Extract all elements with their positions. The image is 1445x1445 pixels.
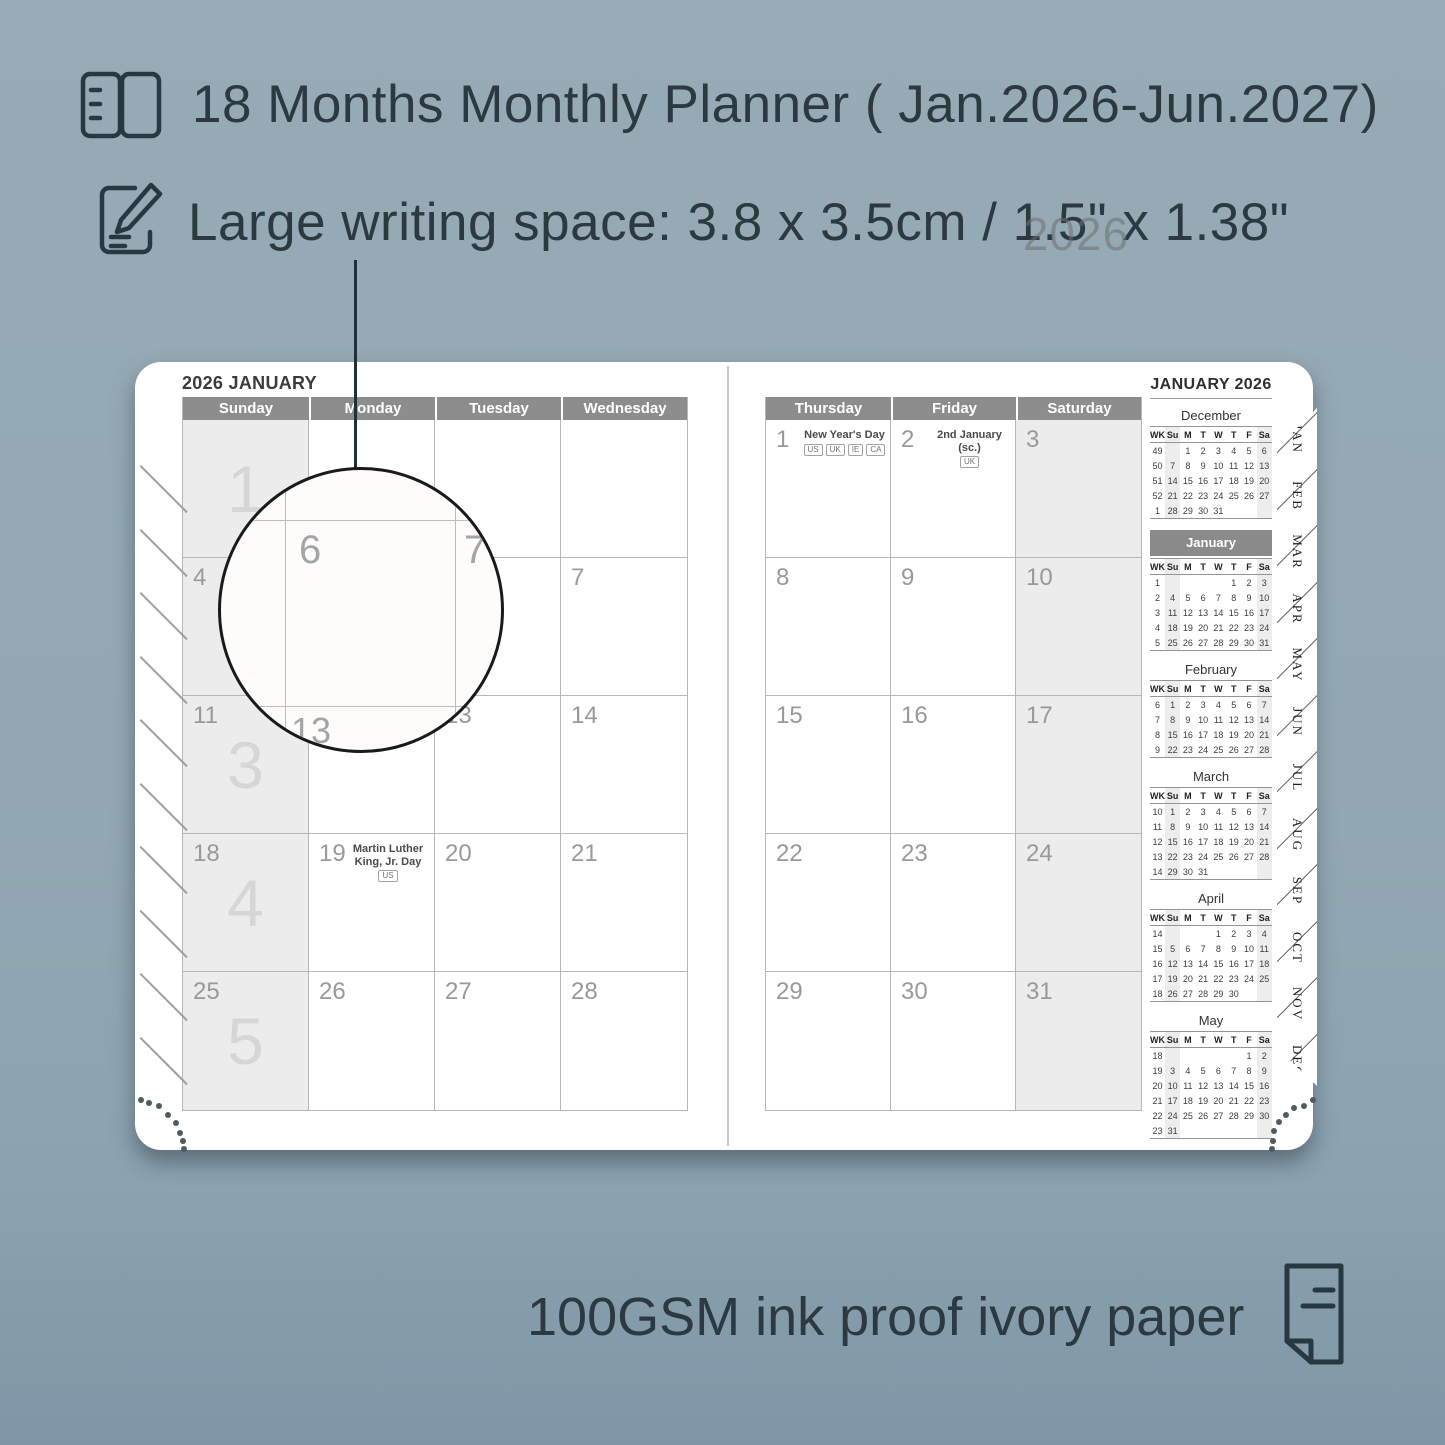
mini-weekday-header: WK: [1150, 559, 1165, 575]
mini-day: 12: [1165, 956, 1180, 971]
mini-day: 7: [1165, 458, 1180, 473]
mini-day: 28: [1165, 503, 1180, 518]
holiday-label: 2nd January (sc.)UK: [927, 429, 1012, 468]
mini-week-number: 19: [1150, 1063, 1165, 1078]
mini-day: 17: [1196, 727, 1211, 742]
mini-day: 9: [1226, 941, 1241, 956]
mini-month-title: April: [1150, 891, 1272, 906]
decoration-dot: [181, 1146, 187, 1152]
decoration-dot: [180, 1138, 186, 1144]
mini-day: 13: [1196, 605, 1211, 620]
cell-date: 24: [1026, 842, 1053, 866]
mini-week-number: 7: [1150, 712, 1165, 727]
calendar-cell: 21: [561, 834, 687, 972]
mini-day: 23: [1180, 742, 1195, 757]
mini-day: [1180, 1123, 1195, 1138]
mini-day: [1211, 575, 1226, 590]
mini-week-number: 6: [1150, 697, 1165, 712]
mini-day: [1165, 575, 1180, 590]
mini-day: 2: [1226, 926, 1241, 941]
mini-day: 22: [1180, 488, 1195, 503]
mini-day: 13: [1241, 819, 1256, 834]
mini-day: 10: [1165, 1078, 1180, 1093]
mini-day: 27: [1241, 742, 1256, 757]
mini-day: 17: [1165, 1093, 1180, 1108]
mini-day: 28: [1211, 635, 1226, 650]
mini-day: 7: [1257, 804, 1272, 819]
mini-weekday-header: WK: [1150, 788, 1165, 804]
mini-weekday-header: T: [1226, 1032, 1241, 1048]
mini-week-number: 4: [1150, 620, 1165, 635]
right-month-grid: ThursdayFridaySaturday1New Year's DayUSU…: [765, 397, 1142, 1111]
holiday-name: 2nd January (sc.): [927, 429, 1012, 454]
day-header-monday: Monday: [309, 397, 435, 420]
hatch-line: [140, 656, 188, 704]
mini-day: 22: [1165, 742, 1180, 757]
calendar-cell: 1New Year's DayUSUKIECA: [766, 420, 891, 558]
mini-day: 20: [1257, 473, 1272, 488]
calendar-cell: 30: [891, 972, 1016, 1110]
calendar-cell: 22: [766, 834, 891, 972]
mini-month-table: WKSuMTWTFSa49123456507891011121351141516…: [1150, 426, 1272, 519]
mini-day: 19: [1226, 727, 1241, 742]
cell-date: 10: [1026, 566, 1053, 590]
mini-day: 31: [1211, 503, 1226, 518]
mini-day: 15: [1241, 1078, 1256, 1093]
mini-day: 9: [1180, 712, 1195, 727]
hatch-line: [140, 529, 188, 577]
mini-day: 28: [1196, 986, 1211, 1001]
mini-day: 25: [1257, 971, 1272, 986]
holiday-name: Martin Luther King, Jr. Day: [345, 843, 431, 868]
mini-day: [1241, 986, 1256, 1001]
mini-day: 30: [1180, 864, 1195, 879]
mini-day: 30: [1196, 503, 1211, 518]
mini-day: [1257, 986, 1272, 1001]
mini-day: 11: [1257, 941, 1272, 956]
mini-month-may: MayWKSuMTWTFSa18121934567892010111213141…: [1150, 1013, 1272, 1139]
mini-day: 29: [1241, 1108, 1256, 1123]
mini-day: 17: [1211, 473, 1226, 488]
month-tab-aug: AUG: [1277, 804, 1317, 861]
magnifier-circle: 6 7 13: [218, 467, 504, 753]
mini-weekday-header: M: [1180, 681, 1195, 697]
hatch-line: [140, 783, 188, 831]
month-tab-apr: APR: [1277, 578, 1317, 635]
mini-week-number: 49: [1150, 443, 1165, 458]
mini-day: 27: [1211, 1108, 1226, 1123]
mini-day: 31: [1165, 1123, 1180, 1138]
mini-weekday-header: WK: [1150, 681, 1165, 697]
calendar-cell: 26: [309, 972, 435, 1110]
mini-week-number: 5: [1150, 635, 1165, 650]
mini-weekday-header: WK: [1150, 427, 1165, 443]
mini-weekday-header: Sa: [1257, 910, 1272, 926]
mini-day: 8: [1165, 712, 1180, 727]
mini-day: 1: [1211, 926, 1226, 941]
cell-date: 1: [776, 428, 789, 452]
mini-month-title: May: [1150, 1013, 1272, 1028]
mini-day: 5: [1180, 590, 1195, 605]
mini-day: 9: [1180, 819, 1195, 834]
calendar-cell: 418: [183, 834, 309, 972]
mini-day: 31: [1257, 635, 1272, 650]
mini-day: 2: [1180, 804, 1195, 819]
mini-day: 16: [1180, 834, 1195, 849]
mini-day: 25: [1211, 849, 1226, 864]
mini-day: 22: [1241, 1093, 1256, 1108]
mini-weekday-header: Su: [1165, 427, 1180, 443]
cell-date: 25: [193, 980, 220, 1004]
mini-day: 25: [1211, 742, 1226, 757]
calendar-cell: 24: [1016, 834, 1141, 972]
mini-day: 27: [1257, 488, 1272, 503]
cell-date: 31: [1026, 980, 1053, 1004]
cell-date: 15: [776, 704, 803, 728]
mini-day: 11: [1165, 605, 1180, 620]
cell-date: 22: [776, 842, 803, 866]
month-tab-label: APR: [1289, 593, 1305, 624]
mini-month-table: WKSuMTWTFSa18121934567892010111213141516…: [1150, 1031, 1272, 1139]
cell-date: 23: [901, 842, 928, 866]
calendar-cell: 19Martin Luther King, Jr. DayUS: [309, 834, 435, 972]
mini-week-number: 14: [1150, 864, 1165, 879]
mini-weekday-header: WK: [1150, 910, 1165, 926]
mini-day: 20: [1211, 1093, 1226, 1108]
mini-weekday-header: M: [1180, 559, 1195, 575]
mini-day: 21: [1226, 1093, 1241, 1108]
mini-day: 3: [1196, 697, 1211, 712]
mini-day: 1: [1226, 575, 1241, 590]
cell-date: 7: [571, 566, 584, 590]
month-tab-jul: JUL: [1277, 747, 1317, 804]
mini-day: 21: [1257, 834, 1272, 849]
mini-day: 1: [1180, 443, 1195, 458]
mini-day: 8: [1211, 941, 1226, 956]
month-tab-jan: JAN: [1277, 408, 1317, 465]
mini-weekday-header: Su: [1165, 559, 1180, 575]
mini-day: 3: [1165, 1063, 1180, 1078]
calendar-cell: 15: [766, 696, 891, 834]
calendar-cell: 29: [766, 972, 891, 1110]
mini-week-number: 13: [1150, 849, 1165, 864]
left-page-title: 2026 JANUARY: [182, 373, 317, 394]
month-tab-jun: JUN: [1277, 691, 1317, 748]
month-tab-label: MAY: [1289, 647, 1305, 682]
mini-day: 25: [1180, 1108, 1195, 1123]
mini-weekday-header: Sa: [1257, 788, 1272, 804]
mini-day: 28: [1226, 1108, 1241, 1123]
mini-week-number: 16: [1150, 956, 1165, 971]
decoration-dot: [177, 1130, 183, 1136]
mini-day: 6: [1241, 697, 1256, 712]
feature-planner-range: 18 Months Monthly Planner ( Jan.2026-Jun…: [192, 74, 1379, 135]
decoration-dot: [1270, 1138, 1276, 1144]
mini-day: 18: [1211, 834, 1226, 849]
mini-day: 25: [1226, 488, 1241, 503]
mini-day: [1226, 864, 1241, 879]
mini-day: 21: [1196, 971, 1211, 986]
mini-weekday-header: T: [1226, 427, 1241, 443]
month-tab-label: SEP: [1289, 877, 1305, 905]
mini-weekday-header: W: [1211, 681, 1226, 697]
mini-month-table: WKSuMTWTFSa10123456711891011121314121516…: [1150, 787, 1272, 880]
month-tab-mar: MAR: [1277, 521, 1317, 578]
calendar-cell: 23: [891, 834, 1016, 972]
calendar-cell: [561, 420, 687, 558]
country-badge: CA: [866, 444, 885, 456]
mini-day: [1211, 1123, 1226, 1138]
open-planner-icon: [78, 70, 164, 145]
decoration-dot: [165, 1112, 171, 1118]
mini-day: 11: [1226, 458, 1241, 473]
mini-weekday-header: Su: [1165, 681, 1180, 697]
calendar-cell: 16: [891, 696, 1016, 834]
hatch-line: [140, 973, 188, 1021]
mini-week-number: 1: [1150, 575, 1165, 590]
mini-weekday-header: M: [1180, 1032, 1195, 1048]
mini-day: 18: [1165, 620, 1180, 635]
month-tab-label: NOV: [1289, 987, 1305, 1021]
decoration-dot: [173, 1120, 179, 1126]
mini-day: 31: [1196, 864, 1211, 879]
mini-day: 18: [1257, 956, 1272, 971]
mini-weekday-header: M: [1180, 427, 1195, 443]
mini-day: 27: [1241, 849, 1256, 864]
mini-day: 19: [1196, 1093, 1211, 1108]
month-tab-label: JUN: [1289, 707, 1305, 737]
mini-day: 10: [1211, 458, 1226, 473]
mini-weekday-header: T: [1226, 910, 1241, 926]
mini-month-title: December: [1150, 408, 1272, 423]
mini-day: 19: [1241, 473, 1256, 488]
mini-week-number: 11: [1150, 819, 1165, 834]
mini-day: [1180, 575, 1195, 590]
mini-day: 24: [1241, 971, 1256, 986]
cell-date: 30: [901, 980, 928, 1004]
mini-day: 20: [1180, 971, 1195, 986]
mini-day: 7: [1257, 697, 1272, 712]
mini-month-january: JanuaryWKSuMTWTFSa1123245678910311121314…: [1150, 530, 1272, 651]
mini-month-banner: January: [1150, 530, 1272, 556]
mini-weekday-header: Sa: [1257, 1032, 1272, 1048]
mini-day: 15: [1165, 834, 1180, 849]
mini-day: 6: [1211, 1063, 1226, 1078]
mini-day: [1165, 926, 1180, 941]
mini-day: 4: [1257, 926, 1272, 941]
mini-day: 26: [1165, 986, 1180, 1001]
mini-day: [1226, 1048, 1241, 1063]
calendar-cell: 7: [561, 558, 687, 696]
mini-day: 12: [1226, 712, 1241, 727]
decoration-dot: [1310, 1097, 1316, 1103]
mini-weekday-header: T: [1226, 681, 1241, 697]
mini-weekday-header: Su: [1165, 1032, 1180, 1048]
mini-day: 4: [1165, 590, 1180, 605]
mini-day: 15: [1226, 605, 1241, 620]
country-badge: IE: [848, 444, 864, 456]
mini-day: 2: [1196, 443, 1211, 458]
month-tab-label: FEB: [1289, 481, 1305, 511]
mini-day: 24: [1196, 849, 1211, 864]
mini-day: 6: [1257, 443, 1272, 458]
cell-date: 28: [571, 980, 598, 1004]
mini-month-title: March: [1150, 769, 1272, 784]
decoration-dot: [1276, 1119, 1282, 1125]
mini-weekday-header: T: [1196, 559, 1211, 575]
mini-weekday-header: W: [1211, 559, 1226, 575]
day-header-friday: Friday: [891, 397, 1016, 420]
mini-day: [1226, 503, 1241, 518]
sidebar-month-title: JANUARY 2026: [1150, 376, 1272, 394]
mini-day: 26: [1226, 849, 1241, 864]
mini-day: 14: [1165, 473, 1180, 488]
mini-day: 14: [1196, 956, 1211, 971]
calendar-cell: 17: [1016, 696, 1141, 834]
mini-day: 4: [1211, 697, 1226, 712]
mini-month-march: MarchWKSuMTWTFSa101234567118910111213141…: [1150, 769, 1272, 880]
calendar-cell: 22nd January (sc.)UK: [891, 420, 1016, 558]
mini-week-number: 12: [1150, 834, 1165, 849]
day-header-sunday: Sunday: [183, 397, 309, 420]
mini-weekday-header: T: [1196, 1032, 1211, 1048]
mini-week-number: 18: [1150, 986, 1165, 1001]
decoration-dot: [1283, 1112, 1289, 1118]
calendar-cell: 9: [891, 558, 1016, 696]
mini-day: 29: [1180, 503, 1195, 518]
country-badge: UK: [826, 444, 845, 456]
mini-day: 30: [1241, 635, 1256, 650]
mini-day: 6: [1180, 941, 1195, 956]
mini-day: 9: [1241, 590, 1256, 605]
mini-weekday-header: F: [1241, 788, 1256, 804]
mini-day: 17: [1196, 834, 1211, 849]
mini-day: 16: [1241, 605, 1256, 620]
mini-day: 22: [1211, 971, 1226, 986]
magnified-date: 13: [291, 713, 331, 749]
mini-day: 8: [1241, 1063, 1256, 1078]
mini-week-number: 23: [1150, 1123, 1165, 1138]
cell-date: 16: [901, 704, 928, 728]
mini-weekday-header: F: [1241, 910, 1256, 926]
decoration-dot: [1269, 1146, 1275, 1152]
mini-day: 5: [1196, 1063, 1211, 1078]
cell-date: 9: [901, 566, 914, 590]
mini-weekday-header: T: [1226, 559, 1241, 575]
mini-day: 14: [1211, 605, 1226, 620]
cell-date: 14: [571, 704, 598, 728]
mini-day: 3: [1196, 804, 1211, 819]
country-badge: UK: [960, 456, 979, 468]
day-header-wednesday: Wednesday: [561, 397, 687, 420]
mini-day: [1165, 1048, 1180, 1063]
mini-weekday-header: W: [1211, 788, 1226, 804]
mini-day: 30: [1257, 1108, 1272, 1123]
mini-day: 1: [1165, 804, 1180, 819]
mini-day: 26: [1180, 635, 1195, 650]
mini-day: 12: [1226, 819, 1241, 834]
mini-month-april: AprilWKSuMTWTFSa141234155678910111612131…: [1150, 891, 1272, 1002]
cell-date: 8: [776, 566, 789, 590]
month-tab-may: MAY: [1277, 634, 1317, 691]
mini-weekday-header: F: [1241, 1032, 1256, 1048]
mini-weekday-header: Sa: [1257, 559, 1272, 575]
mini-day: 15: [1180, 473, 1195, 488]
mini-day: 3: [1257, 575, 1272, 590]
mini-weekday-header: Sa: [1257, 427, 1272, 443]
mini-day: 16: [1257, 1078, 1272, 1093]
decoration-dot: [1271, 1128, 1277, 1134]
mini-day: 6: [1196, 590, 1211, 605]
mini-week-number: 9: [1150, 742, 1165, 757]
decoration-dot: [138, 1097, 144, 1103]
mini-day: 23: [1241, 620, 1256, 635]
mini-day: 27: [1180, 986, 1195, 1001]
mini-day: 7: [1211, 590, 1226, 605]
month-tab-label: JAN: [1289, 424, 1305, 454]
cell-date: 2: [901, 428, 914, 452]
callout-line: [354, 260, 357, 472]
mini-day: 10: [1196, 819, 1211, 834]
mini-day: [1196, 1048, 1211, 1063]
mini-months: DecemberWKSuMTWTFSa491234565078910111213…: [1150, 408, 1272, 1139]
mini-day: [1196, 1123, 1211, 1138]
mini-week-number: 17: [1150, 971, 1165, 986]
mini-day: 23: [1180, 849, 1195, 864]
mini-day: 9: [1257, 1063, 1272, 1078]
mini-week-number: 21: [1150, 1093, 1165, 1108]
mini-day: 23: [1196, 488, 1211, 503]
calendar-cell: 3: [1016, 420, 1141, 558]
mini-day: 2: [1241, 575, 1256, 590]
mini-weekday-header: Sa: [1257, 681, 1272, 697]
mini-day: 27: [1196, 635, 1211, 650]
mini-day: 4: [1211, 804, 1226, 819]
mini-day: 14: [1257, 712, 1272, 727]
holiday-label: Martin Luther King, Jr. DayUS: [345, 843, 431, 882]
mini-day: 10: [1241, 941, 1256, 956]
mini-day: 19: [1180, 620, 1195, 635]
mini-month-title: February: [1150, 662, 1272, 677]
mini-day: 1: [1165, 697, 1180, 712]
month-tab-label: AUG: [1289, 817, 1305, 851]
mini-day: 20: [1196, 620, 1211, 635]
mini-day: 11: [1180, 1078, 1195, 1093]
mini-day: 15: [1211, 956, 1226, 971]
mini-day: 12: [1241, 458, 1256, 473]
hatch-line: [140, 592, 188, 640]
cell-date: 19: [319, 842, 346, 866]
mini-day: 18: [1226, 473, 1241, 488]
decoration-dot: [146, 1100, 152, 1106]
mini-day: 29: [1211, 986, 1226, 1001]
mini-day: 24: [1165, 1108, 1180, 1123]
mini-day: [1196, 575, 1211, 590]
mini-day: 30: [1226, 986, 1241, 1001]
mini-weekday-header: M: [1180, 788, 1195, 804]
mini-week-number: 50: [1150, 458, 1165, 473]
mini-weekday-header: W: [1211, 1032, 1226, 1048]
mini-day: 21: [1257, 727, 1272, 742]
mini-weekday-header: F: [1241, 559, 1256, 575]
mini-day: 20: [1241, 834, 1256, 849]
month-tab-label: JUL: [1289, 764, 1305, 792]
mini-day: 9: [1196, 458, 1211, 473]
mini-day: 7: [1196, 941, 1211, 956]
mini-day: 14: [1257, 819, 1272, 834]
mini-day: 24: [1196, 742, 1211, 757]
mini-day: 5: [1165, 941, 1180, 956]
